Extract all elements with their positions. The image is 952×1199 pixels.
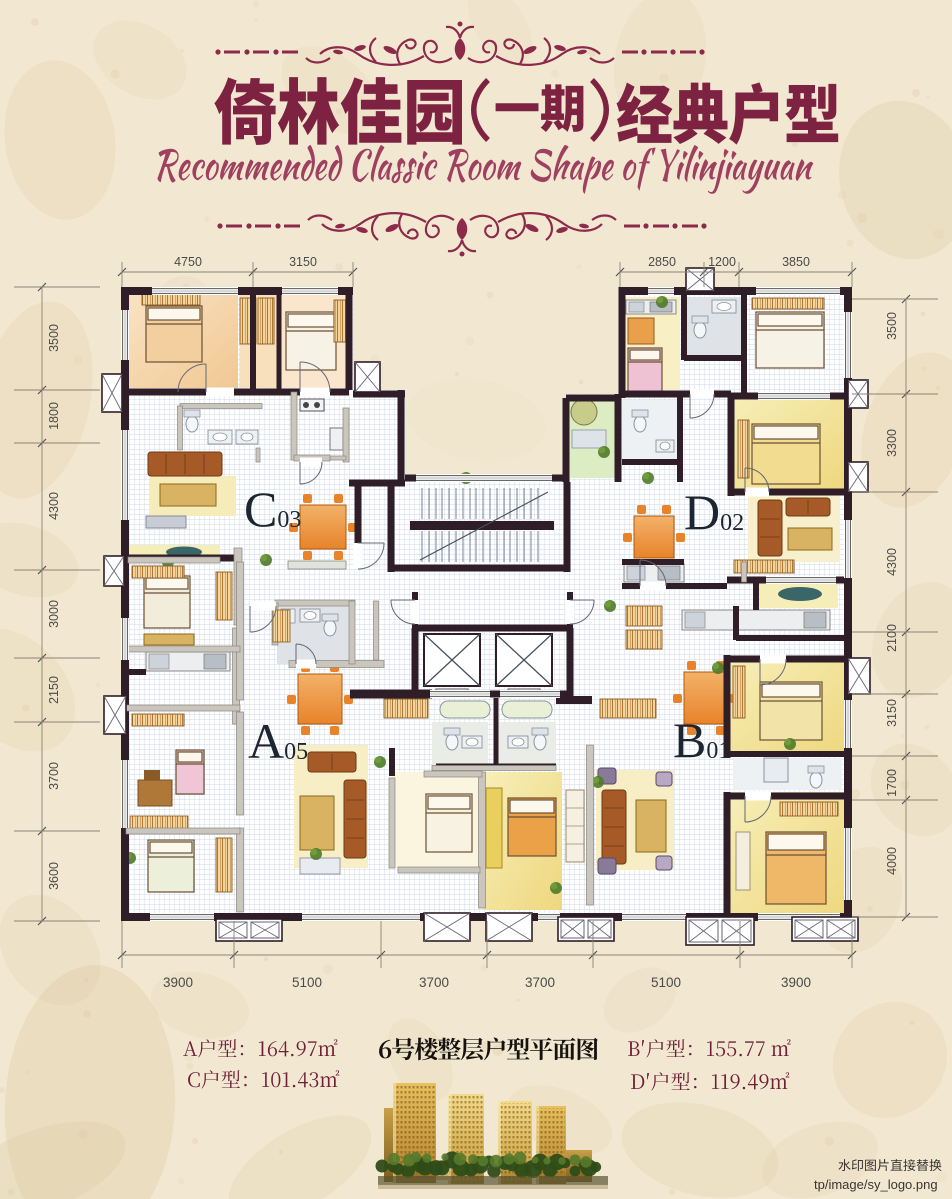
svg-text:3300: 3300: [885, 429, 899, 457]
svg-text:4300: 4300: [885, 548, 899, 576]
svg-text:3900: 3900: [163, 975, 193, 990]
svg-text:4000: 4000: [885, 847, 899, 875]
svg-text:3150: 3150: [885, 699, 899, 727]
svg-text:3000: 3000: [47, 600, 61, 628]
svg-text:1200: 1200: [708, 255, 736, 269]
svg-text:2100: 2100: [885, 624, 899, 652]
svg-text:5100: 5100: [651, 975, 681, 990]
svg-text:4750: 4750: [174, 255, 202, 269]
svg-text:3500: 3500: [885, 312, 899, 340]
svg-text:3150: 3150: [289, 255, 317, 269]
svg-text:2850: 2850: [648, 255, 676, 269]
svg-text:5100: 5100: [292, 975, 322, 990]
svg-text:3700: 3700: [419, 975, 449, 990]
svg-text:3850: 3850: [782, 255, 810, 269]
svg-text:tp/image/sy_logo.png: tp/image/sy_logo.png: [814, 1177, 938, 1192]
svg-text:2150: 2150: [47, 676, 61, 704]
svg-text:3700: 3700: [47, 762, 61, 790]
svg-text:4300: 4300: [47, 492, 61, 520]
svg-text:3900: 3900: [781, 975, 811, 990]
svg-text:3500: 3500: [47, 324, 61, 352]
svg-text:3600: 3600: [47, 862, 61, 890]
svg-text:3700: 3700: [525, 975, 555, 990]
svg-text:1800: 1800: [47, 402, 61, 430]
svg-text:1700: 1700: [885, 769, 899, 797]
